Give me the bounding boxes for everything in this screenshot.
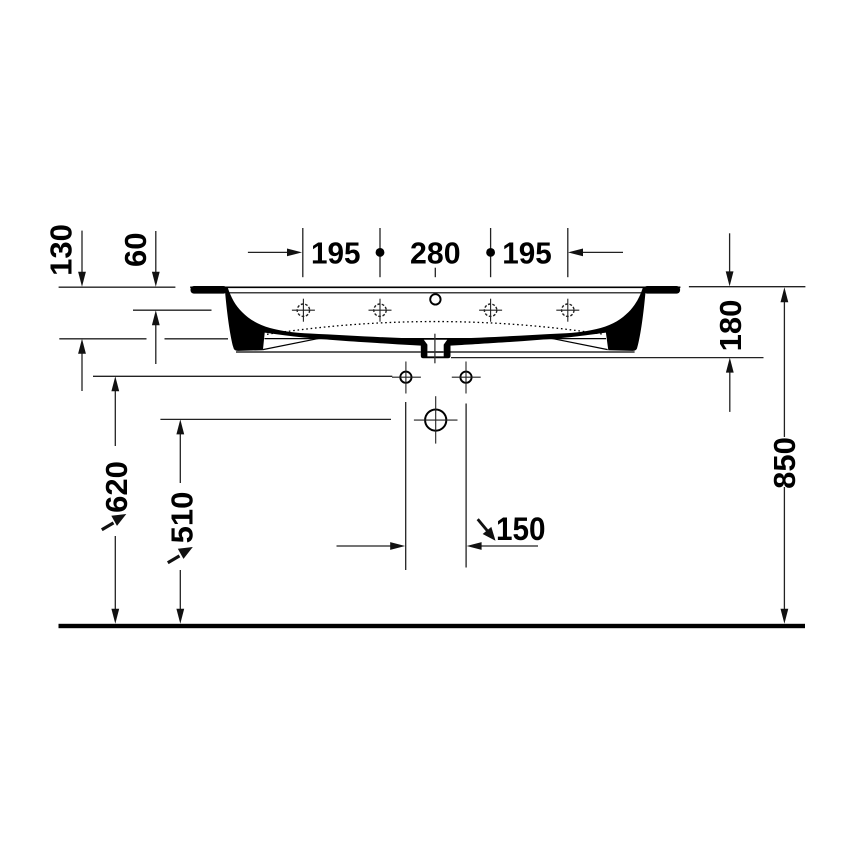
svg-text:510: 510 — [164, 492, 199, 544]
svg-text:180: 180 — [713, 300, 748, 352]
svg-text:195: 195 — [502, 236, 552, 271]
svg-text:195: 195 — [311, 236, 361, 271]
svg-text:620: 620 — [99, 461, 134, 513]
svg-text:60: 60 — [118, 233, 153, 267]
svg-text:150: 150 — [496, 511, 546, 547]
svg-text:850: 850 — [767, 437, 802, 489]
svg-text:280: 280 — [410, 236, 461, 271]
svg-text:130: 130 — [44, 224, 79, 276]
